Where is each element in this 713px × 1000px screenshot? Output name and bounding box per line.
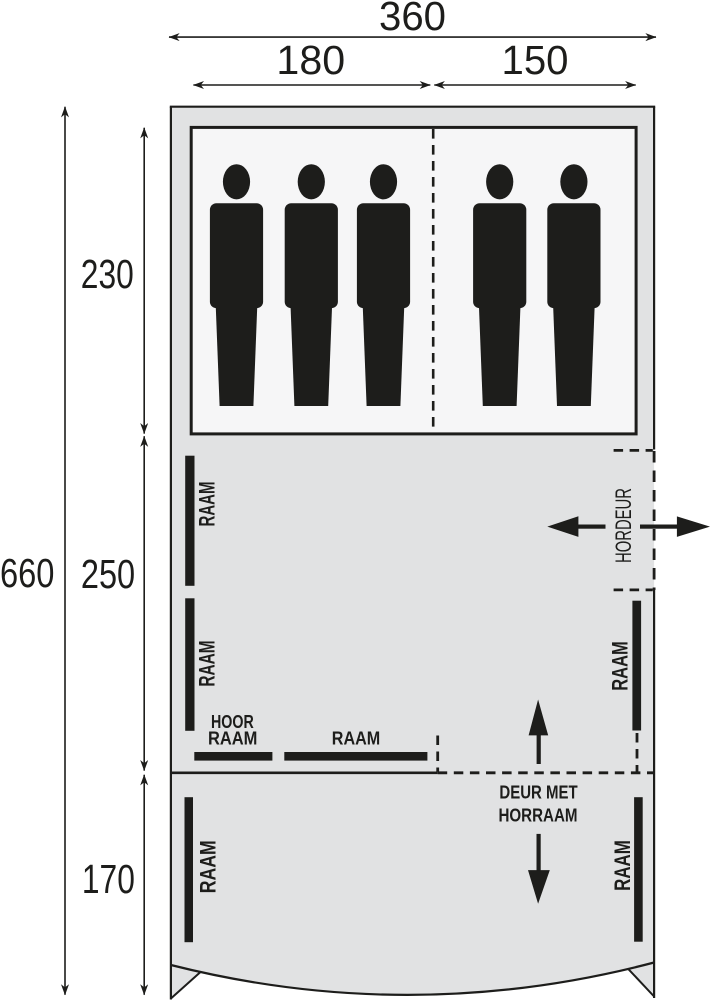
svg-text:HORRAAM: HORRAAM xyxy=(498,805,577,825)
svg-text:150: 150 xyxy=(502,37,569,83)
svg-text:RAAM: RAAM xyxy=(332,729,380,749)
svg-text:RAAM: RAAM xyxy=(195,840,220,893)
svg-text:170: 170 xyxy=(82,856,135,902)
svg-text:RAAM: RAAM xyxy=(208,729,258,749)
svg-text:RAAM: RAAM xyxy=(194,482,219,527)
svg-text:RAAM: RAAM xyxy=(610,840,635,891)
svg-text:DEUR MET: DEUR MET xyxy=(499,783,577,803)
svg-text:250: 250 xyxy=(81,551,135,597)
svg-text:180: 180 xyxy=(276,37,345,83)
svg-text:RAAM: RAAM xyxy=(194,640,219,686)
svg-text:360: 360 xyxy=(379,0,446,39)
svg-text:RAAM: RAAM xyxy=(608,641,633,691)
svg-text:660: 660 xyxy=(0,550,54,596)
svg-text:230: 230 xyxy=(81,251,134,297)
svg-text:HORDEUR: HORDEUR xyxy=(611,488,636,563)
